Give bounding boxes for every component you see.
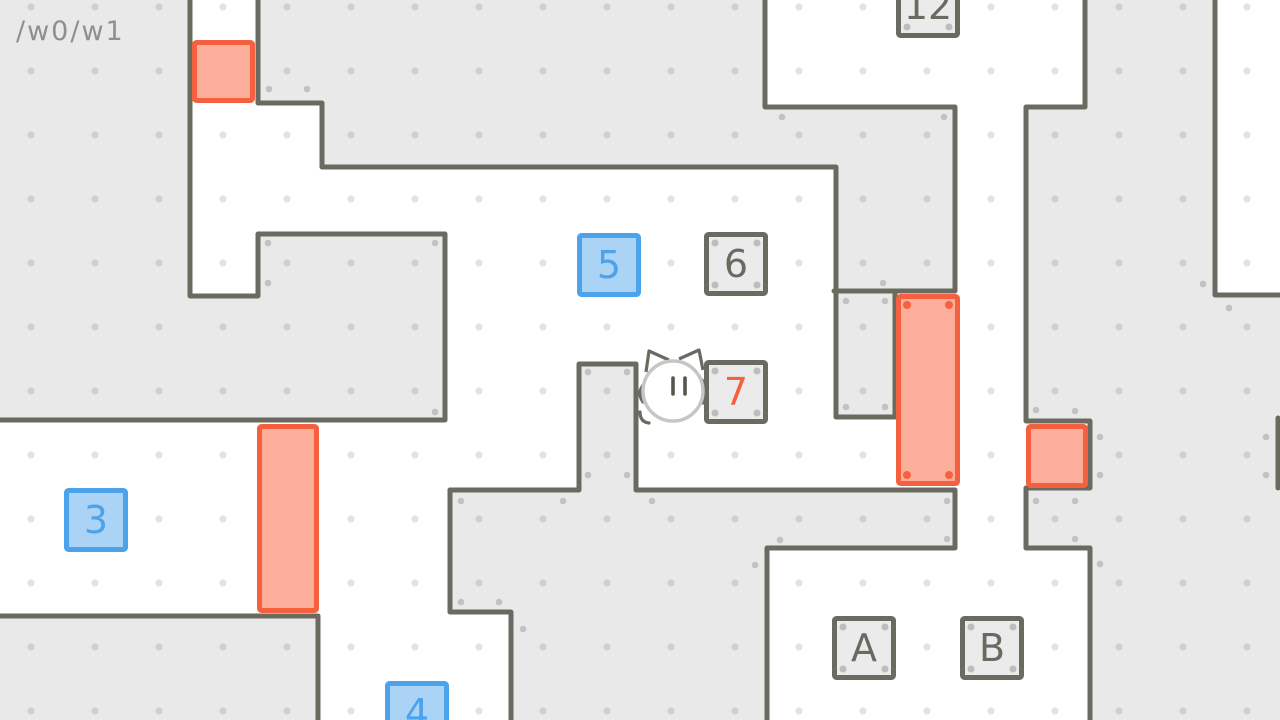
box-corner-dot [840, 666, 847, 673]
box-corner-dot [754, 368, 761, 375]
box-6[interactable]: 6 [707, 235, 766, 294]
box-corner-dot [882, 624, 889, 631]
box-4-label: 4 [405, 691, 429, 720]
box-B[interactable]: B [963, 619, 1022, 678]
box-4[interactable]: 4 [388, 684, 447, 720]
crate-corner-dot [945, 301, 953, 309]
box-corner-dot [712, 368, 719, 375]
crate-east[interactable] [1029, 427, 1086, 486]
box-corner-dot [968, 666, 975, 673]
box-12-label: 12 [904, 0, 952, 28]
box-corner-dot [712, 240, 719, 247]
box-corner-dot [1010, 624, 1017, 631]
box-corner-dot [968, 624, 975, 631]
box-corner-dot [712, 282, 719, 289]
crate-corner-dot [945, 471, 953, 479]
crate-top-left[interactable] [195, 43, 253, 101]
box-corner-dot [754, 240, 761, 247]
game-stage[interactable]: 3456712AB /w0/w1 [0, 0, 1280, 720]
box-corner-dot [882, 666, 889, 673]
box-corner-dot [1010, 666, 1017, 673]
box-12[interactable]: 12 [899, 0, 958, 36]
box-3-label: 3 [84, 498, 108, 542]
crate-left[interactable] [260, 427, 317, 611]
box-3[interactable]: 3 [67, 491, 126, 550]
box-A-label: A [851, 626, 877, 670]
box-7[interactable]: 7 [707, 363, 766, 422]
box-5-label: 5 [597, 243, 621, 287]
crate-tall[interactable] [899, 297, 958, 484]
box-corner-dot [840, 624, 847, 631]
cat-player[interactable] [640, 350, 707, 423]
box-B-label: B [979, 626, 1005, 670]
crate-corner-dot [903, 471, 911, 479]
box-6-label: 6 [724, 242, 748, 286]
box-corner-dot [754, 410, 761, 417]
crate-corner-dot [903, 301, 911, 309]
box-5[interactable]: 5 [580, 236, 639, 295]
box-7-label: 7 [724, 370, 748, 414]
maze-canvas[interactable]: 3456712AB [0, 0, 1280, 720]
box-corner-dot [712, 410, 719, 417]
box-corner-dot [754, 282, 761, 289]
box-A[interactable]: A [835, 619, 894, 678]
level-path-label: /w0/w1 [16, 16, 125, 47]
